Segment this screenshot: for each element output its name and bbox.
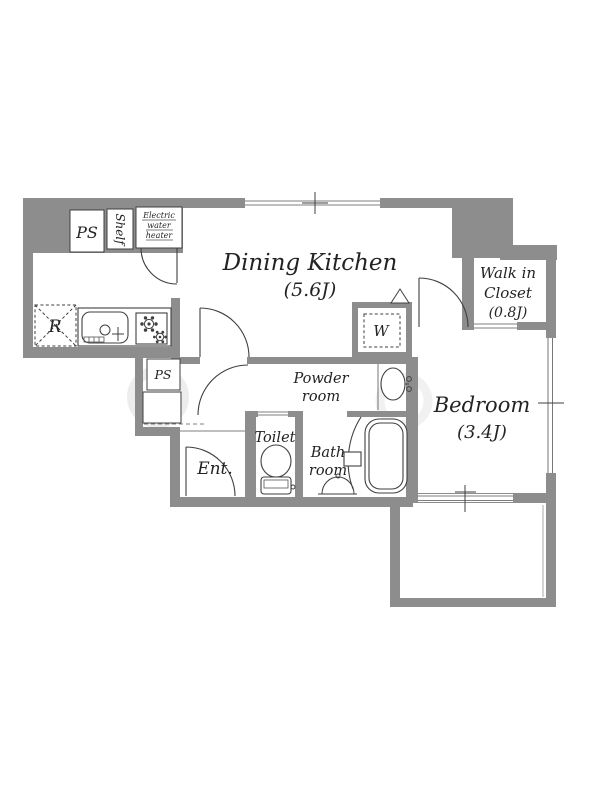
label-walk-in-closet-2: Closet [484, 284, 533, 302]
bathtub [365, 419, 407, 493]
label-refrigerator: R [48, 317, 62, 337]
label-powder-room-2: room [302, 389, 340, 405]
window-top [245, 192, 380, 214]
label-bedroom: Bedroom [433, 393, 531, 417]
floorplan-svg: Dining Kitchen (5.6J) Bedroom (3.4J) Wal… [0, 0, 600, 800]
label-powder-room-1: Powder [292, 371, 349, 387]
door-dining-kitchen [200, 308, 249, 357]
window-bedroom-east [538, 338, 564, 473]
label-bath-room-1: Bath [310, 445, 345, 461]
label-dining-kitchen: Dining Kitchen [222, 250, 398, 276]
door-washroom-hall [198, 365, 248, 415]
label-bath-room-2: room [309, 463, 347, 479]
window-bedroom-south [418, 485, 513, 512]
label-heater-1: Electric [142, 211, 175, 220]
door-water-heater [141, 248, 177, 284]
label-walk-in-closet-area: (0.8J) [489, 305, 528, 321]
washer-door-triangle [391, 289, 409, 303]
toilet-fixture [261, 445, 295, 494]
label-heater-3: heater [146, 231, 174, 240]
door-bedroom [419, 278, 468, 327]
label-washing-machine: W [373, 322, 390, 340]
label-entrance: Ent. [196, 459, 233, 479]
label-ps-lower: PS [154, 367, 172, 382]
label-bedroom-area: (3.4J) [457, 422, 507, 443]
stove [136, 313, 167, 344]
hall-storage-box [143, 392, 181, 423]
floorplan-page: { "floorplan": { "rooms": { "dining_kitc… [0, 0, 600, 800]
label-shelf: Shelf [113, 213, 127, 247]
label-ps-upper: PS [75, 223, 98, 242]
label-toilet: Toilet [255, 430, 296, 446]
label-dining-kitchen-area: (5.6J) [284, 279, 337, 301]
label-heater-2: water [147, 221, 172, 230]
label-walk-in-closet-1: Walk in [480, 264, 536, 282]
